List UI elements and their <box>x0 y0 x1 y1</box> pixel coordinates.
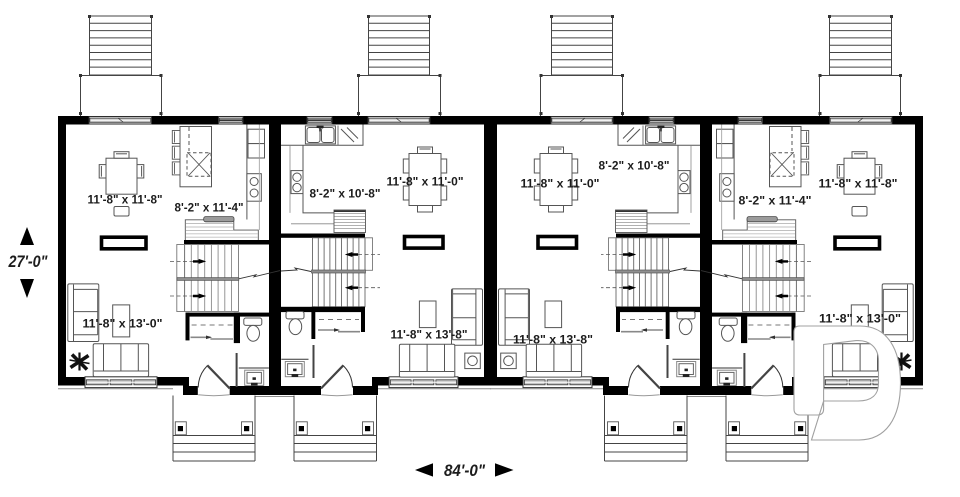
svg-text:27'-0": 27'-0" <box>8 253 48 271</box>
svg-text:11'-8" x 13'-8": 11'-8" x 13'-8" <box>391 328 468 342</box>
svg-text:8'-2" x 11'-4": 8'-2" x 11'-4" <box>175 201 244 215</box>
svg-text:8'-2" x 10'-8": 8'-2" x 10'-8" <box>599 159 670 173</box>
svg-text:11'-8" x 13'-0": 11'-8" x 13'-0" <box>819 312 901 326</box>
svg-text:11'-8" x 11'-0": 11'-8" x 11'-0" <box>387 175 464 189</box>
svg-text:11'-8" x 11'-8": 11'-8" x 11'-8" <box>88 193 163 207</box>
svg-text:11'-8" x 11'-0": 11'-8" x 11'-0" <box>521 177 600 191</box>
svg-text:8'-2" x 11'-4": 8'-2" x 11'-4" <box>739 194 812 208</box>
svg-text:8'-2" x 10'-8": 8'-2" x 10'-8" <box>310 187 381 201</box>
svg-text:11'-8" x 13'-0": 11'-8" x 13'-0" <box>83 317 163 331</box>
svg-text:84'-0": 84'-0" <box>444 462 485 480</box>
svg-text:11'-8" x 13'-8": 11'-8" x 13'-8" <box>513 333 593 347</box>
svg-text:11'-8" x 11'-8": 11'-8" x 11'-8" <box>819 177 898 191</box>
